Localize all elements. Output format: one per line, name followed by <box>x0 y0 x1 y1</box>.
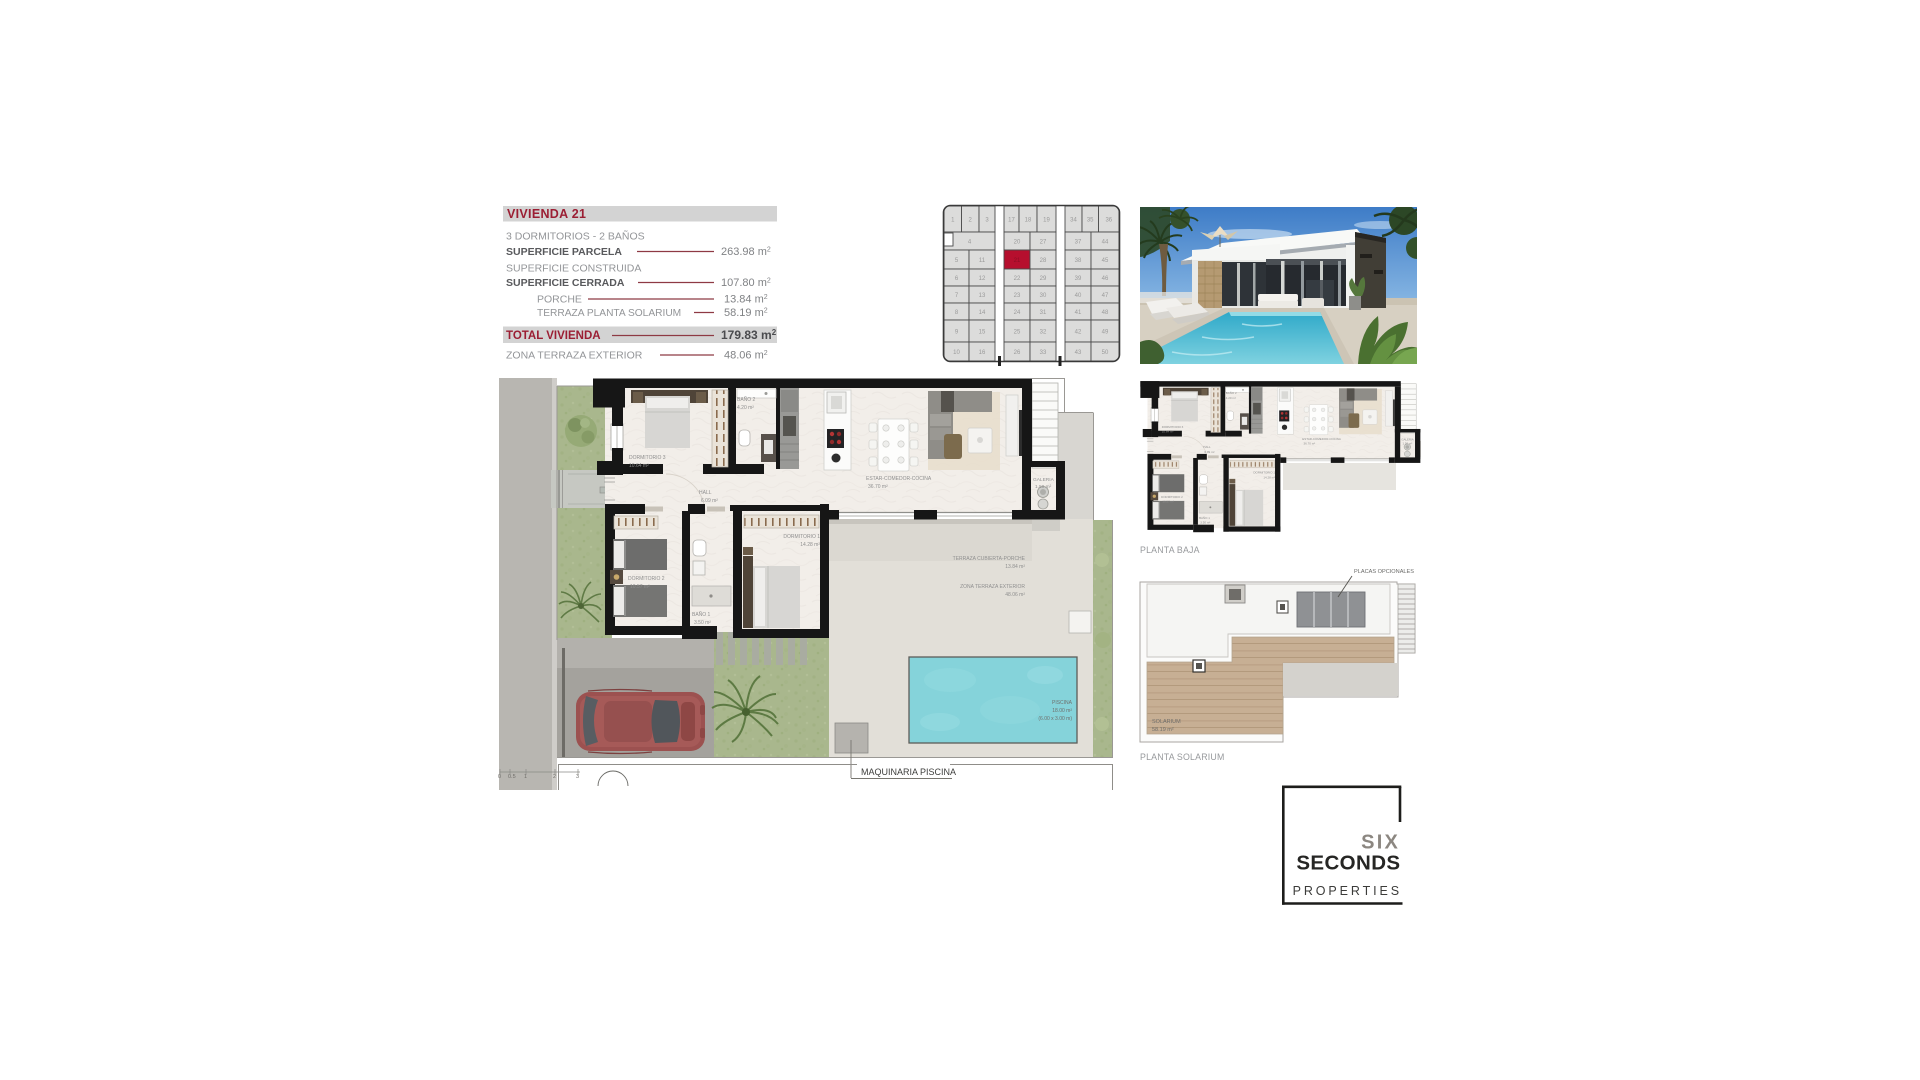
svg-text:25: 25 <box>1014 329 1021 335</box>
svg-text:30: 30 <box>1040 293 1047 299</box>
svg-text:13: 13 <box>979 293 986 299</box>
svg-text:49: 49 <box>1102 329 1109 335</box>
svg-text:3 DORMITORIOS - 2 BAÑOS: 3 DORMITORIOS - 2 BAÑOS <box>506 230 645 243</box>
svg-text:179.83 m2: 179.83 m2 <box>721 328 777 342</box>
svg-text:TOTAL VIVIENDA: TOTAL VIVIENDA <box>506 330 601 342</box>
svg-text:1: 1 <box>524 774 527 780</box>
svg-text:SIX: SIX <box>1361 832 1400 854</box>
svg-text:PLACAS OPCIONALES: PLACAS OPCIONALES <box>1354 569 1414 575</box>
svg-text:19: 19 <box>1043 217 1050 223</box>
svg-text:41: 41 <box>1075 310 1082 316</box>
svg-text:32: 32 <box>1040 329 1047 335</box>
svg-text:SECONDS: SECONDS <box>1296 852 1400 875</box>
svg-text:10: 10 <box>953 350 960 356</box>
svg-text:46: 46 <box>1102 276 1109 282</box>
svg-text:50: 50 <box>1102 350 1109 356</box>
svg-text:263.98 m2: 263.98 m2 <box>721 246 771 258</box>
svg-text:44: 44 <box>1102 239 1109 245</box>
svg-text:107.80 m2: 107.80 m2 <box>721 277 771 289</box>
svg-text:20: 20 <box>1014 239 1021 245</box>
svg-text:34: 34 <box>1070 217 1077 223</box>
svg-text:24: 24 <box>1014 310 1021 316</box>
svg-text:15: 15 <box>979 329 986 335</box>
svg-text:TERRAZA CUBIERTA-PORCHE: TERRAZA CUBIERTA-PORCHE <box>953 556 1026 562</box>
svg-text:36: 36 <box>1105 217 1112 223</box>
svg-text:58.19 m²: 58.19 m² <box>1152 727 1174 733</box>
svg-text:43: 43 <box>1075 350 1082 356</box>
svg-text:48.06 m2: 48.06 m2 <box>724 350 768 362</box>
svg-text:23: 23 <box>1014 293 1021 299</box>
svg-text:2: 2 <box>553 774 556 780</box>
svg-text:37: 37 <box>1075 239 1082 245</box>
svg-text:PROPERTIES: PROPERTIES <box>1293 884 1402 898</box>
svg-text:35: 35 <box>1087 217 1094 223</box>
svg-text:13.84 m2: 13.84 m2 <box>724 294 768 306</box>
svg-text:(6.00 x 3.00 m): (6.00 x 3.00 m) <box>1038 716 1072 722</box>
svg-text:21: 21 <box>1014 258 1021 264</box>
svg-text:48.06 m²: 48.06 m² <box>1005 592 1025 598</box>
svg-text:33: 33 <box>1040 350 1047 356</box>
svg-text:0: 0 <box>498 774 501 780</box>
svg-text:12: 12 <box>979 276 986 282</box>
svg-text:58.19 m2: 58.19 m2 <box>724 307 768 319</box>
svg-text:16: 16 <box>979 350 986 356</box>
svg-text:38: 38 <box>1075 258 1082 264</box>
svg-text:PISCINA: PISCINA <box>1052 700 1073 706</box>
svg-text:SUPERFICIE CONSTRUIDA: SUPERFICIE CONSTRUIDA <box>506 263 641 275</box>
svg-text:48: 48 <box>1102 310 1109 316</box>
svg-text:PORCHE: PORCHE <box>537 294 582 306</box>
svg-text:39: 39 <box>1075 276 1082 282</box>
svg-text:PLANTA SOLARIUM: PLANTA SOLARIUM <box>1140 752 1224 762</box>
svg-text:PLANTA BAJA: PLANTA BAJA <box>1140 545 1200 555</box>
svg-text:11: 11 <box>979 258 986 264</box>
svg-text:MAQUINARIA PISCINA: MAQUINARIA PISCINA <box>861 767 956 777</box>
svg-text:47: 47 <box>1102 293 1109 299</box>
svg-text:SOLARIUM: SOLARIUM <box>1152 719 1181 725</box>
svg-text:29: 29 <box>1040 276 1047 282</box>
svg-text:18: 18 <box>1025 217 1032 223</box>
svg-text:VIVIENDA 21: VIVIENDA 21 <box>507 207 586 221</box>
svg-text:14: 14 <box>979 310 986 316</box>
svg-text:0.5: 0.5 <box>508 774 516 780</box>
svg-text:40: 40 <box>1075 293 1082 299</box>
svg-text:42: 42 <box>1075 329 1082 335</box>
svg-text:SUPERFICIE CERRADA: SUPERFICIE CERRADA <box>506 277 625 289</box>
svg-text:18.00 m²: 18.00 m² <box>1052 708 1072 714</box>
svg-text:ZONA TERRAZA EXTERIOR: ZONA TERRAZA EXTERIOR <box>960 584 1025 590</box>
svg-text:SUPERFICIE PARCELA: SUPERFICIE PARCELA <box>506 246 622 258</box>
svg-text:45: 45 <box>1102 258 1109 264</box>
svg-text:17: 17 <box>1008 217 1015 223</box>
svg-text:22: 22 <box>1014 276 1021 282</box>
svg-text:TERRAZA PLANTA SOLARIUM: TERRAZA PLANTA SOLARIUM <box>537 308 681 319</box>
svg-text:3: 3 <box>576 774 579 780</box>
svg-text:28: 28 <box>1040 258 1047 264</box>
svg-text:26: 26 <box>1014 350 1021 356</box>
svg-text:13.84 m²: 13.84 m² <box>1005 564 1025 570</box>
svg-text:31: 31 <box>1040 310 1047 316</box>
svg-text:ZONA TERRAZA EXTERIOR: ZONA TERRAZA EXTERIOR <box>506 350 643 362</box>
svg-text:27: 27 <box>1040 239 1047 245</box>
